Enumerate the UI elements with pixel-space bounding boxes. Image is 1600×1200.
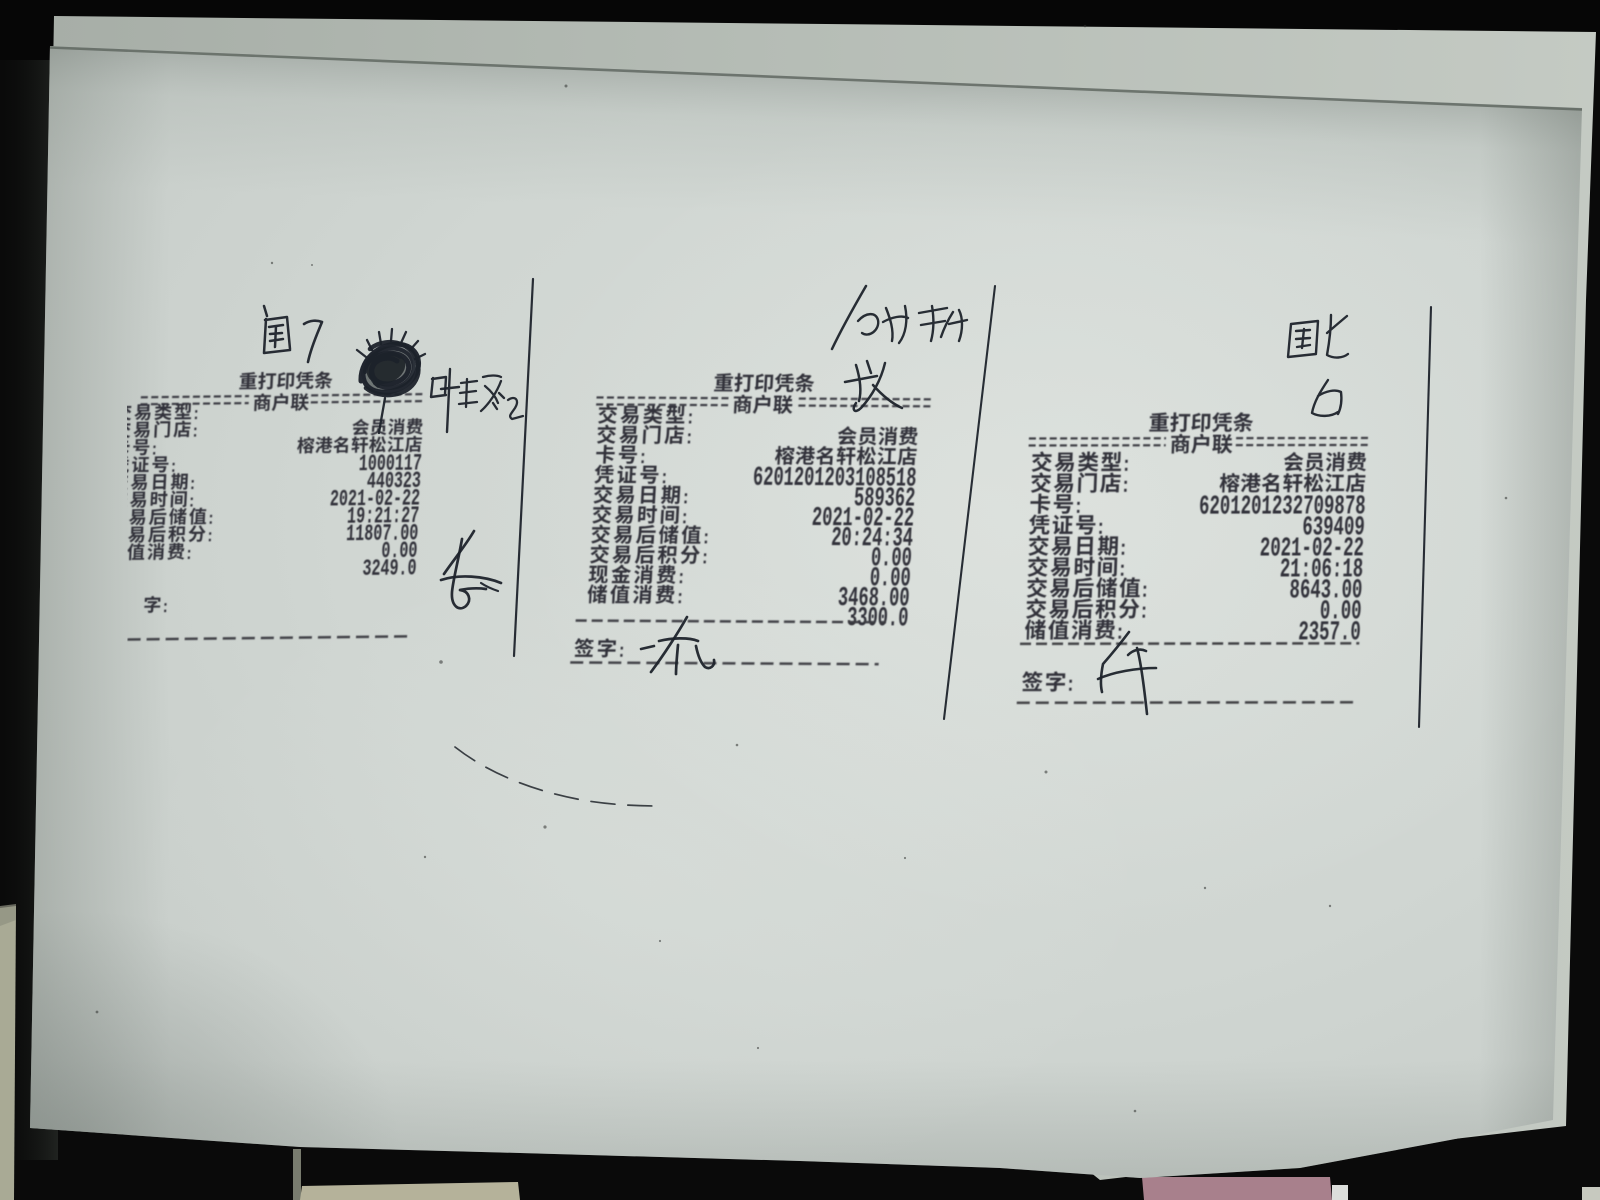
svg-text::: : [161,598,171,617]
svg-text::: : [1139,580,1150,603]
svg-text::: : [684,428,695,449]
svg-text::: : [1121,454,1132,477]
svg-text::: : [1065,674,1076,697]
svg-text::: : [616,642,627,663]
svg-text::: : [190,423,200,442]
svg-text::: : [685,408,696,429]
svg-text::: : [206,510,216,529]
svg-text::: : [184,545,194,564]
svg-text:3249.0: 3249.0 [362,556,417,583]
svg-text::: : [676,568,687,589]
svg-text:3300.0: 3300.0 [846,604,909,634]
svg-text::: : [674,588,685,609]
svg-text::: : [699,548,710,569]
svg-text::: : [701,528,712,549]
svg-text::: : [1117,538,1128,561]
svg-text::: : [205,527,215,546]
svg-text::: : [680,488,691,509]
svg-text::: : [1138,601,1149,624]
svg-text::: : [191,405,201,424]
svg-text::: : [1120,475,1131,498]
svg-text::: : [188,475,198,494]
svg-text::: : [1114,622,1125,645]
